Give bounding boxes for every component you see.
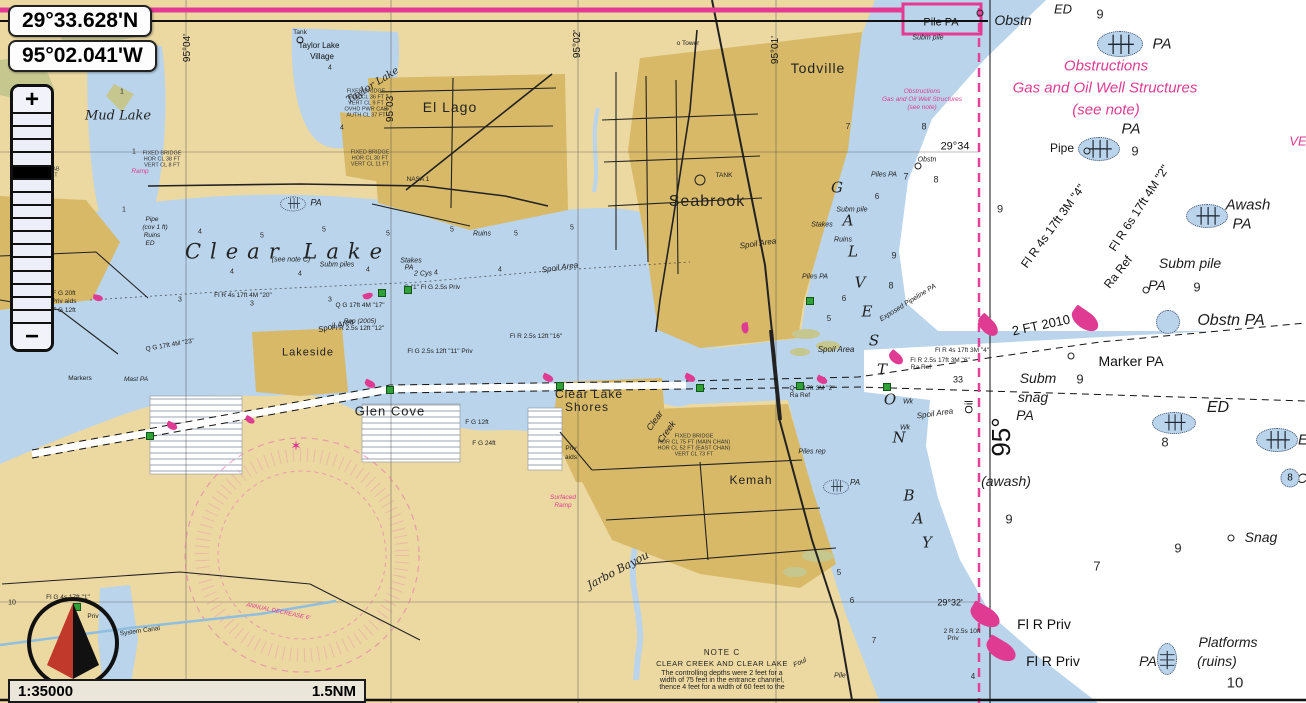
zoom-level-segment[interactable]	[13, 296, 51, 309]
zoom-level-segment[interactable]	[13, 138, 51, 151]
zoom-level-segment[interactable]	[13, 270, 51, 283]
zoom-level-segment[interactable]	[13, 151, 51, 164]
zoom-level-segment[interactable]	[13, 112, 51, 125]
scale-bar: 1:35000 1.5NM	[8, 679, 366, 703]
note-c: NOTE C CLEAR CREEK AND CLEAR LAKE The co…	[586, 648, 858, 691]
zoom-control[interactable]: + −	[10, 84, 54, 352]
longitude-readout: 95°02.041'W	[8, 40, 157, 72]
zoom-out-button[interactable]: −	[13, 324, 51, 349]
compass-icon	[25, 595, 121, 691]
latitude-readout: 29°33.628'N	[8, 5, 152, 37]
zoom-level-indicator[interactable]	[13, 165, 51, 178]
zoom-level-segment[interactable]	[13, 243, 51, 256]
scale-distance: 1.5NM	[312, 683, 356, 700]
zoom-slider-track[interactable]	[13, 112, 51, 324]
note-c-subtitle: CLEAR CREEK AND CLEAR LAKE	[586, 659, 858, 668]
zoom-level-segment[interactable]	[13, 178, 51, 191]
zoom-level-segment[interactable]	[13, 256, 51, 269]
zoom-in-button[interactable]: +	[13, 87, 51, 112]
zoom-level-segment[interactable]	[13, 204, 51, 217]
chart-viewer[interactable]: Mud LakeTaylor LakeTankTaylor LakeVillag…	[0, 0, 1306, 703]
zoom-level-segment[interactable]	[13, 217, 51, 230]
zoom-level-segment[interactable]	[13, 230, 51, 243]
nautical-chart-canvas[interactable]	[0, 0, 1306, 703]
scale-ratio: 1:35000	[18, 683, 73, 700]
zoom-level-segment[interactable]	[13, 283, 51, 296]
note-c-title: NOTE C	[586, 648, 858, 657]
zoom-level-segment[interactable]	[13, 125, 51, 138]
zoom-level-segment[interactable]	[13, 191, 51, 204]
